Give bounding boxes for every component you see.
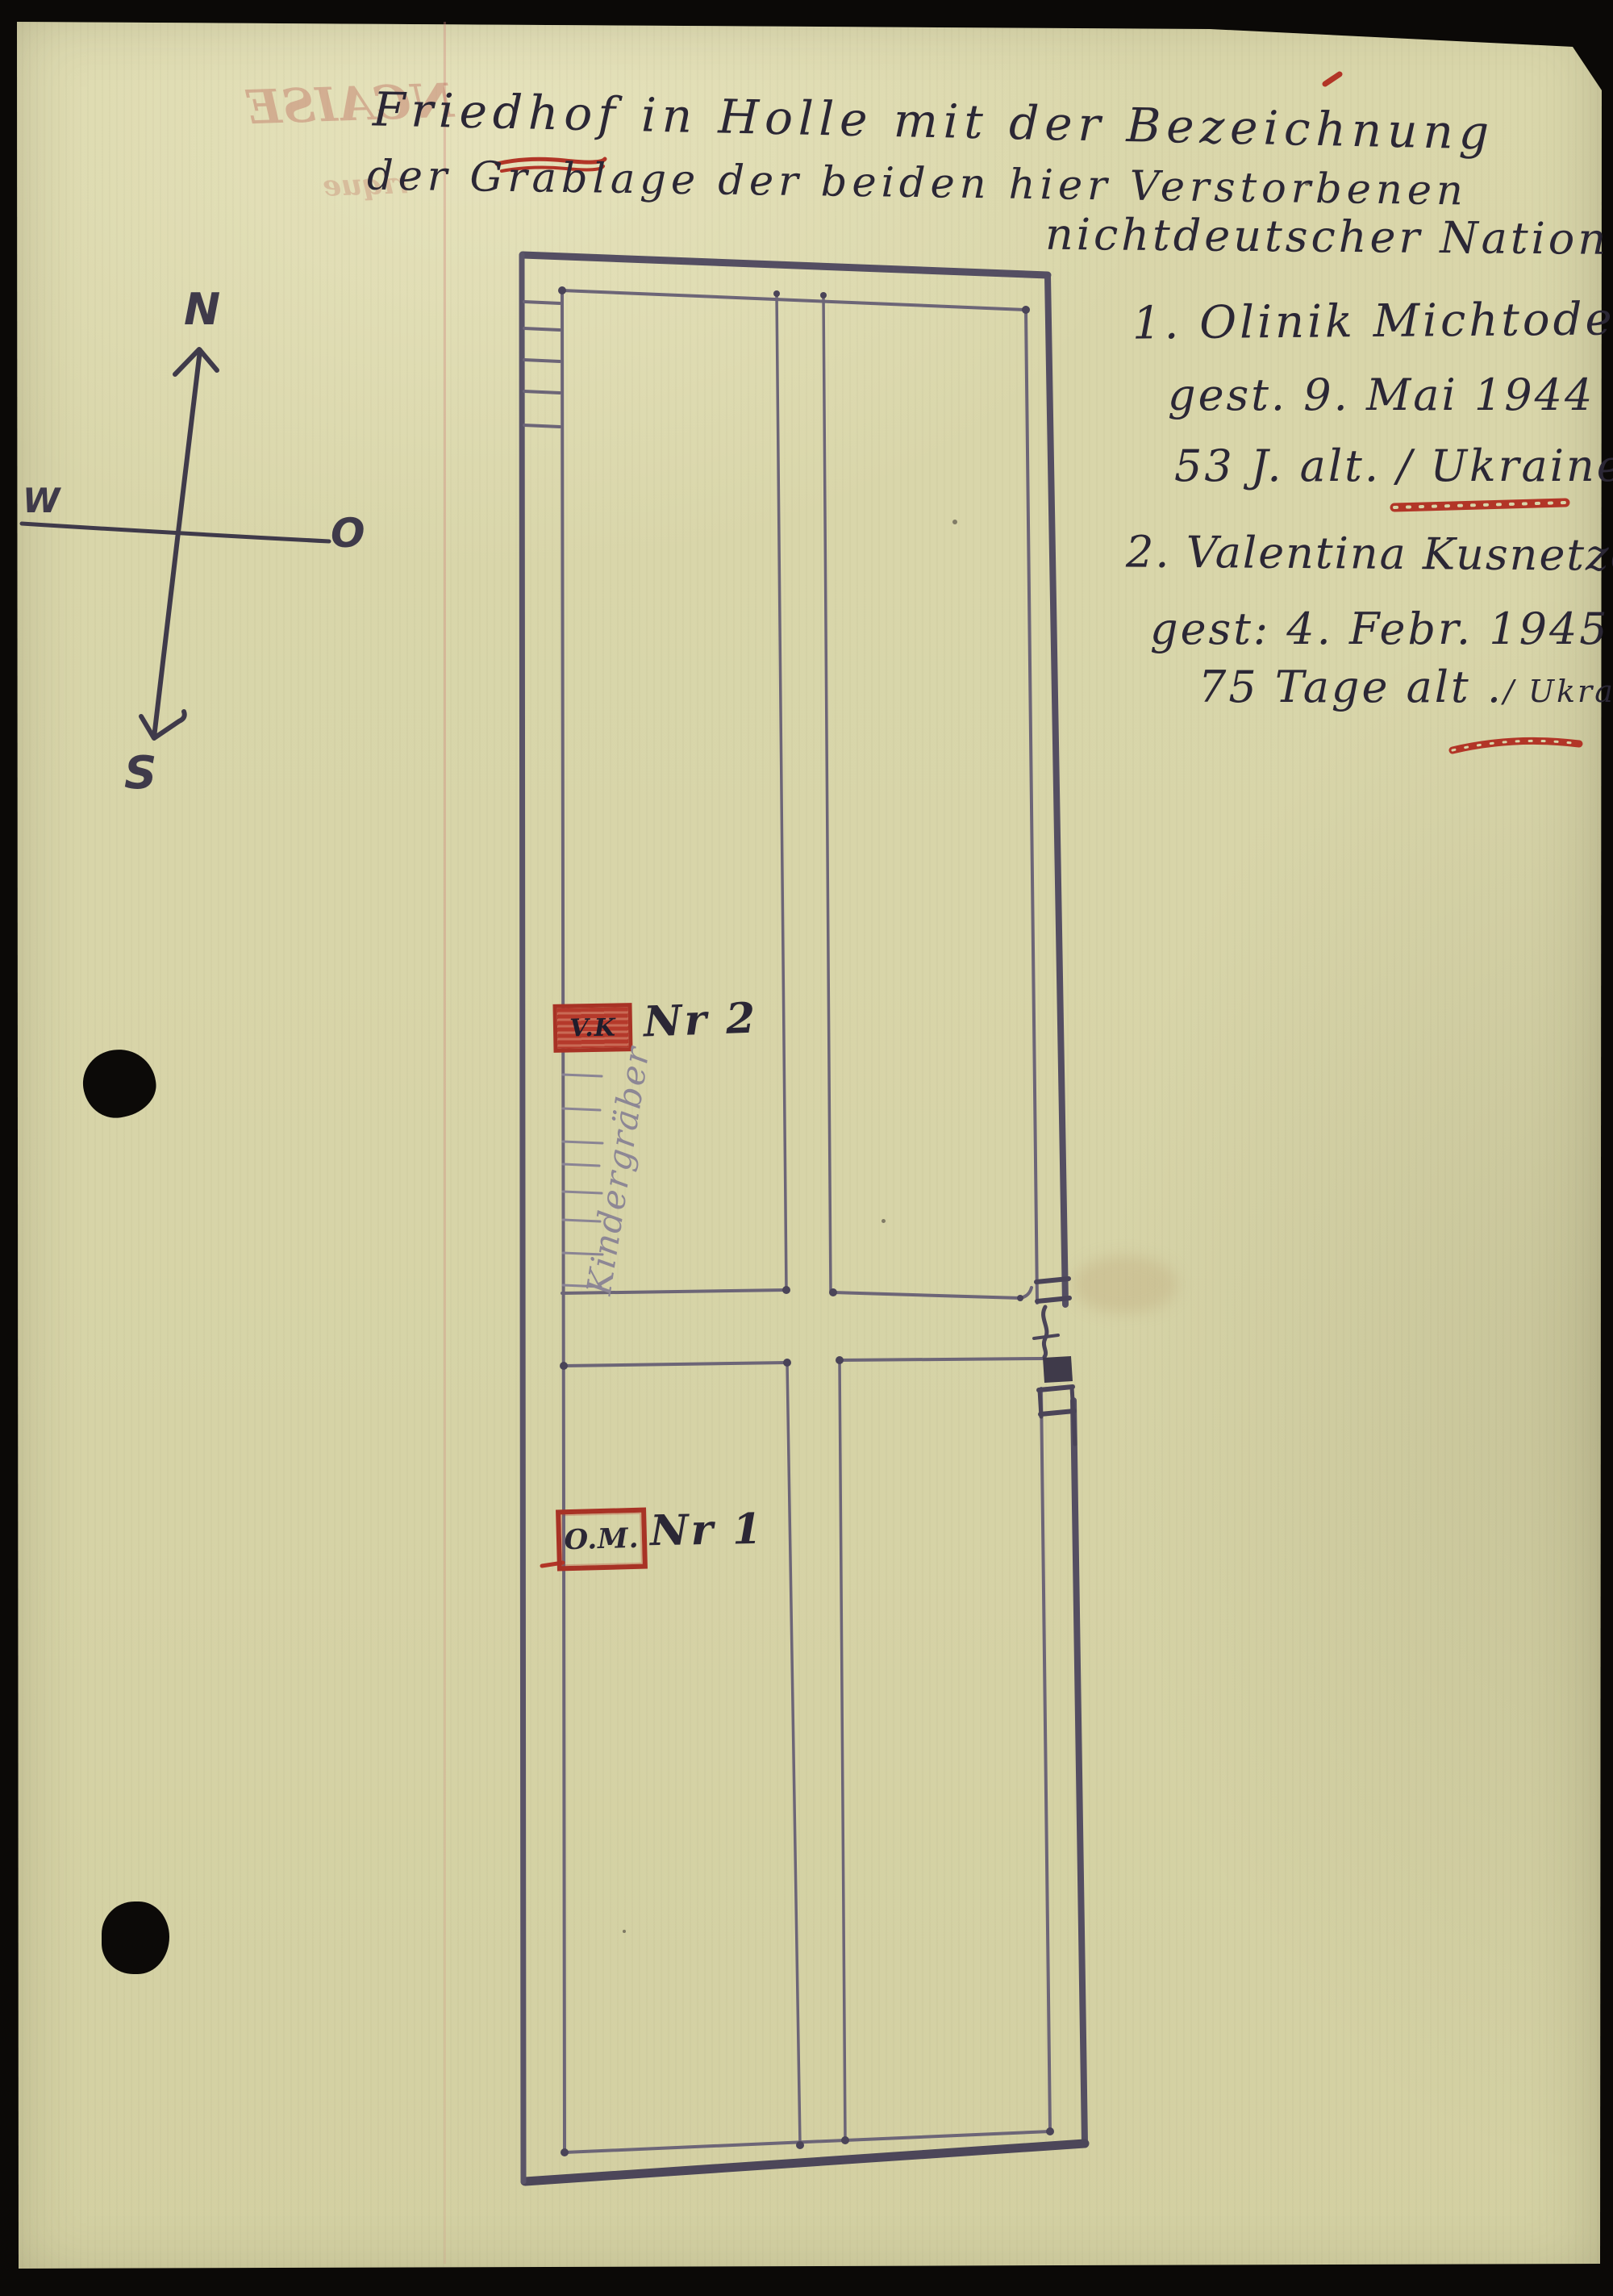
compass-west-label: W (23, 481, 60, 520)
plan-outer-left (522, 255, 523, 2181)
grave-marker-vk-number: Nr 2 (643, 994, 758, 1047)
plan-inner-left (562, 290, 565, 2152)
plan-center-right-lower (840, 1360, 845, 2140)
deceased-2-origin: / Ukraine (1503, 674, 1613, 709)
compass-north-label: N (184, 284, 220, 335)
plan-center-right-upper (823, 295, 831, 1292)
compass-rose (22, 349, 329, 738)
compass-east-label: O (331, 510, 365, 557)
plan-center-left-upper (777, 294, 786, 1290)
plan-inner-top (562, 290, 1026, 310)
plan-divider-lower-left (564, 1363, 787, 1366)
dust-speck (882, 1219, 886, 1223)
plan-outer-top (523, 255, 1048, 275)
scanned-document: NCAISE rique (0, 0, 1613, 2296)
plan-outer-right-lower (1073, 1401, 1085, 2144)
red-mark-top-right (1325, 74, 1340, 84)
grave-marker-om-number: Nr 1 (649, 1505, 764, 1555)
plan-hatch-ticks-topleft (524, 302, 560, 427)
plan-inner-right-upper (1026, 310, 1037, 1303)
deceased-2-age-origin: 75 Tage alt ./ Ukraine (1198, 662, 1613, 712)
grave-marker-vk-initials: V.K (569, 1013, 616, 1042)
plan-divider-lower-right (840, 1359, 1043, 1360)
compass-south-label: S (124, 747, 156, 799)
grave-marker-om: O.M. (556, 1508, 648, 1572)
compass-south-arrowhead (141, 712, 185, 738)
plan-center-left-lower (787, 1363, 800, 2145)
deceased-2-age: 75 Tage alt . (1198, 662, 1503, 712)
compass-ns-line (154, 350, 200, 737)
plan-outer-right-upper (1048, 275, 1065, 1305)
deceased-1-age-origin: 53 J. alt. / Ukraine (1174, 440, 1613, 491)
dust-speck (623, 1930, 626, 1933)
plan-inner-right-lower (1041, 1388, 1050, 2131)
deceased-1-name: 1. Olinik Michtode (1132, 293, 1613, 349)
deceased-2-date: gest: 4. Febr. 1945 (1150, 603, 1610, 654)
deceased-1-date: gest. 9. Mai 1944 (1168, 369, 1594, 420)
dust-speck (952, 520, 957, 524)
title-line-3: nichtdeutscher Nation : (1045, 209, 1613, 265)
plan-divider-upper-right (833, 1288, 1032, 1298)
deceased-2-name: 2. Valentina Kusnetzowa (1126, 526, 1613, 581)
dust-speck (1305, 182, 1309, 186)
plan-junction-dots (558, 286, 1054, 2156)
grave-marker-om-initials: O.M. (564, 1522, 640, 1556)
punch-hole-bottom (102, 1902, 169, 1974)
